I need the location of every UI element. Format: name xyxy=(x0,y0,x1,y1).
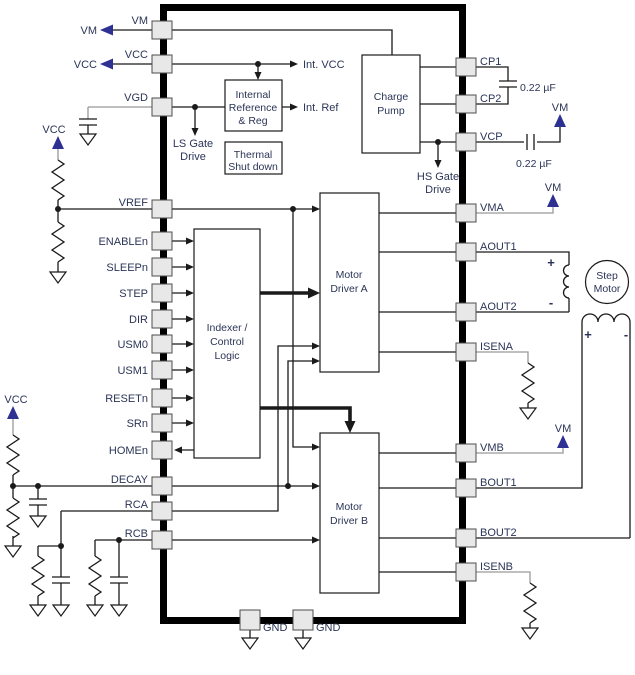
pin-dir xyxy=(152,310,172,328)
pin-label-vcc: VCC xyxy=(125,49,148,61)
pin-rcb xyxy=(152,531,172,549)
hs-gate-drive-label: Drive xyxy=(425,184,451,196)
resistors xyxy=(7,160,536,623)
coil-a-plus: + xyxy=(547,255,555,270)
motor-driver-b-label: Driver B xyxy=(330,515,368,527)
pin-label-homen: HOMEn xyxy=(109,445,148,457)
indexer-label: Indexer / xyxy=(207,322,248,334)
step-motor-label: Step xyxy=(596,270,618,282)
pin-srn xyxy=(152,414,172,432)
ls-gate-drive-label: LS Gate xyxy=(173,138,213,150)
pin-label-bout2: BOUT2 xyxy=(480,527,517,539)
pin-label-gnd-2: GND xyxy=(316,622,341,634)
charge-pump-label: Charge xyxy=(374,91,409,103)
internal-reference-label: Internal xyxy=(235,89,270,101)
coil-a-minus: - xyxy=(549,295,553,310)
pin-label-cp2: CP2 xyxy=(480,93,501,105)
pin-label-vma: VMA xyxy=(480,202,505,214)
pin-label-rca: RCA xyxy=(125,499,149,511)
motor-driver-b-label: Motor xyxy=(336,501,363,513)
step-motor-label: Motor xyxy=(594,283,621,295)
pin-isena xyxy=(456,343,476,361)
diagram-stage: Charge Pump Internal Reference & Reg The… xyxy=(0,0,635,670)
indexer-label: Control xyxy=(210,336,244,348)
pin-label-dir: DIR xyxy=(129,314,148,326)
pin-vcc xyxy=(152,55,172,73)
internal-reference-label: Reference xyxy=(229,102,278,114)
pin-aout2 xyxy=(456,303,476,321)
pin-label-aout2: AOUT2 xyxy=(480,301,517,313)
net-label-vcc: VCC xyxy=(42,124,65,136)
indexer-label: Logic xyxy=(214,350,239,362)
pin-vgd xyxy=(152,98,172,116)
pin-label-usm0: USM0 xyxy=(117,339,148,351)
coil-b-minus: - xyxy=(624,327,628,342)
thermal-shutdown-label: Shut down xyxy=(228,161,278,173)
pin-step xyxy=(152,284,172,302)
pin-bout2 xyxy=(456,529,476,547)
net-label-int-vcc: Int. VCC xyxy=(303,59,345,71)
pin-bout1 xyxy=(456,479,476,497)
pin-usm1 xyxy=(152,361,172,379)
pin-resetn xyxy=(152,389,172,407)
net-label-vm: VM xyxy=(555,423,572,435)
net-label-vcc: VCC xyxy=(74,59,97,71)
pin-isenb xyxy=(456,563,476,581)
net-label-vm: VM xyxy=(545,182,562,194)
pin-cp2 xyxy=(456,95,476,113)
pin-cp1 xyxy=(456,58,476,76)
pin-enablen xyxy=(152,232,172,250)
pin-decay xyxy=(152,477,172,495)
net-label-vcc: VCC xyxy=(4,394,27,406)
net-label-vm: VM xyxy=(552,102,569,114)
pin-sleepn xyxy=(152,258,172,276)
pin-vcp xyxy=(456,133,476,151)
pin-label-enablen: ENABLEn xyxy=(98,236,148,248)
pin-label-step: STEP xyxy=(119,288,148,300)
pin-label-gnd-1: GND xyxy=(263,622,288,634)
pin-label-bout1: BOUT1 xyxy=(480,477,517,489)
motor-driver-b-block xyxy=(320,433,379,593)
cap-value-label: 0.22 µF xyxy=(516,158,552,170)
coil-b xyxy=(582,314,630,322)
pin-label-vcp: VCP xyxy=(480,131,503,143)
pin-homen xyxy=(152,441,172,459)
pin-label-decay: DECAY xyxy=(111,474,149,486)
pin-label-rcb: RCB xyxy=(125,528,148,540)
pin-vmb xyxy=(456,444,476,462)
pin-label-isenb: ISENB xyxy=(480,561,513,573)
motor-driver-a-label: Motor xyxy=(336,269,363,281)
charge-pump-block xyxy=(362,55,420,153)
pin-vma xyxy=(456,204,476,222)
pin-vm xyxy=(152,21,172,39)
pin-label-srn: SRn xyxy=(127,418,148,430)
net-label-vm: VM xyxy=(81,25,98,37)
ls-gate-drive-label: Drive xyxy=(180,151,206,163)
thermal-shutdown-label: Thermal xyxy=(234,149,273,161)
pin-gnd-1 xyxy=(240,610,260,630)
pin-rca xyxy=(152,502,172,520)
pin-vref xyxy=(152,200,172,218)
hs-gate-drive-label: HS Gate xyxy=(417,171,459,183)
pin-label-usm1: USM1 xyxy=(117,365,148,377)
pin-label-aout1: AOUT1 xyxy=(480,241,517,253)
pin-label-vm: VM xyxy=(132,15,149,27)
internal-reference-label: & Reg xyxy=(238,115,267,127)
pin-label-vgd: VGD xyxy=(124,92,148,104)
pin-gnd-2 xyxy=(293,610,313,630)
pin-label-sleepn: SLEEPn xyxy=(106,262,148,274)
block-diagram-svg: Charge Pump Internal Reference & Reg The… xyxy=(0,0,635,670)
step-motor-symbol xyxy=(586,261,629,304)
charge-pump-label: Pump xyxy=(377,105,405,117)
pin-label-cp1: CP1 xyxy=(480,56,501,68)
pin-label-vref: VREF xyxy=(119,197,149,209)
net-label-int-ref: Int. Ref xyxy=(303,102,339,114)
pin-label-vmb: VMB xyxy=(480,442,504,454)
motor-driver-a-label: Driver A xyxy=(330,283,367,295)
pin-usm0 xyxy=(152,335,172,353)
coil-a xyxy=(564,265,569,298)
coil-b-plus: + xyxy=(584,327,592,342)
cap-value-label: 0.22 µF xyxy=(520,82,556,94)
pin-label-isena: ISENA xyxy=(480,341,514,353)
pin-label-resetn: RESETn xyxy=(105,393,148,405)
pin-aout1 xyxy=(456,243,476,261)
